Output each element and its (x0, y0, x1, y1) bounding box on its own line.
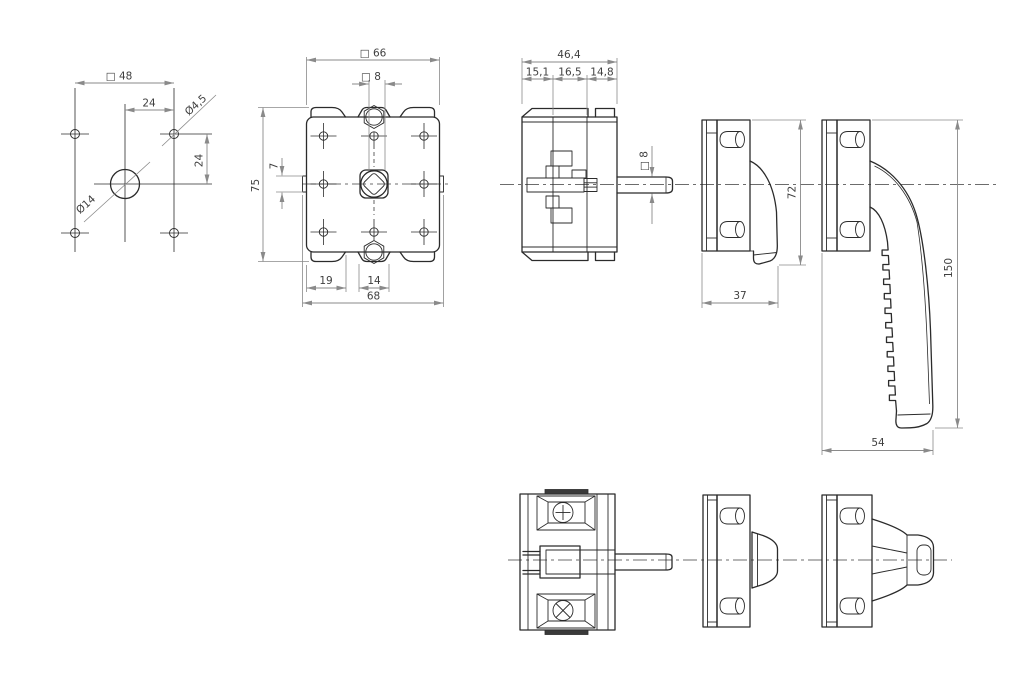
top-tab (545, 490, 588, 495)
folded-handle (750, 161, 777, 264)
screw-slots (720, 508, 745, 614)
dim-75: 75 (250, 179, 262, 192)
dim-46-4: 46,4 (557, 49, 581, 61)
bottom-screw-window (537, 594, 595, 628)
dim-dia-14: Ø14 (74, 193, 98, 217)
open-handle-ribbed-edge (870, 207, 897, 411)
bottom-tab (545, 630, 588, 635)
dim-14-8: 14,8 (590, 67, 613, 79)
dim-7: 7 (269, 163, 281, 170)
drawing-canvas: □ 48 24 Ø4,5 24 Ø14 (0, 0, 1024, 683)
view-handle-open-side: 150 54 (822, 120, 963, 455)
internal-mechanism (527, 151, 597, 223)
dim-19: 19 (319, 275, 332, 287)
dim-square-48: □ 48 (106, 71, 133, 83)
dim-24-top: 24 (142, 98, 156, 110)
center-shaft-opening (360, 152, 388, 215)
screw-slots (840, 508, 865, 614)
view-switch-side: 46,4 15,1 16,5 14,8 □ 8 (522, 49, 673, 261)
dim-square-8: □ 8 (361, 71, 381, 83)
top-screw-window (537, 496, 595, 530)
centerlines (302, 184, 1000, 560)
dim-square-66: □ 66 (360, 48, 387, 60)
dim-15-1: 15,1 (526, 67, 549, 79)
shaft-block (523, 546, 615, 578)
open-handle-outer (870, 161, 933, 428)
dim-54: 54 (871, 437, 885, 449)
dim-150: 150 (943, 258, 955, 278)
dim-shaft-square-8: □ 8 (639, 151, 651, 171)
view-switch-front: □ 66 □ 8 75 7 19 14 68 (250, 48, 444, 308)
dim-68: 68 (367, 291, 380, 303)
dim-37: 37 (733, 290, 746, 302)
technical-drawing-page: □ 48 24 Ø4,5 24 Ø14 (0, 0, 1024, 683)
dim-72: 72 (787, 186, 799, 199)
shaft (617, 177, 673, 193)
dim-24-right: 24 (194, 154, 206, 168)
view-handle-closed-side: 72 37 (702, 120, 806, 308)
view-handle-closed-top (703, 495, 778, 627)
dim-16-5: 16,5 (558, 67, 581, 79)
view-handle-open-top (822, 495, 934, 627)
dim-14: 14 (367, 275, 381, 287)
view-mounting-hole-pattern: □ 48 24 Ø4,5 24 Ø14 (61, 71, 216, 253)
view-switch-top (520, 490, 672, 635)
shaft-top-view (615, 554, 672, 570)
drill-hole-crosses (311, 123, 438, 245)
